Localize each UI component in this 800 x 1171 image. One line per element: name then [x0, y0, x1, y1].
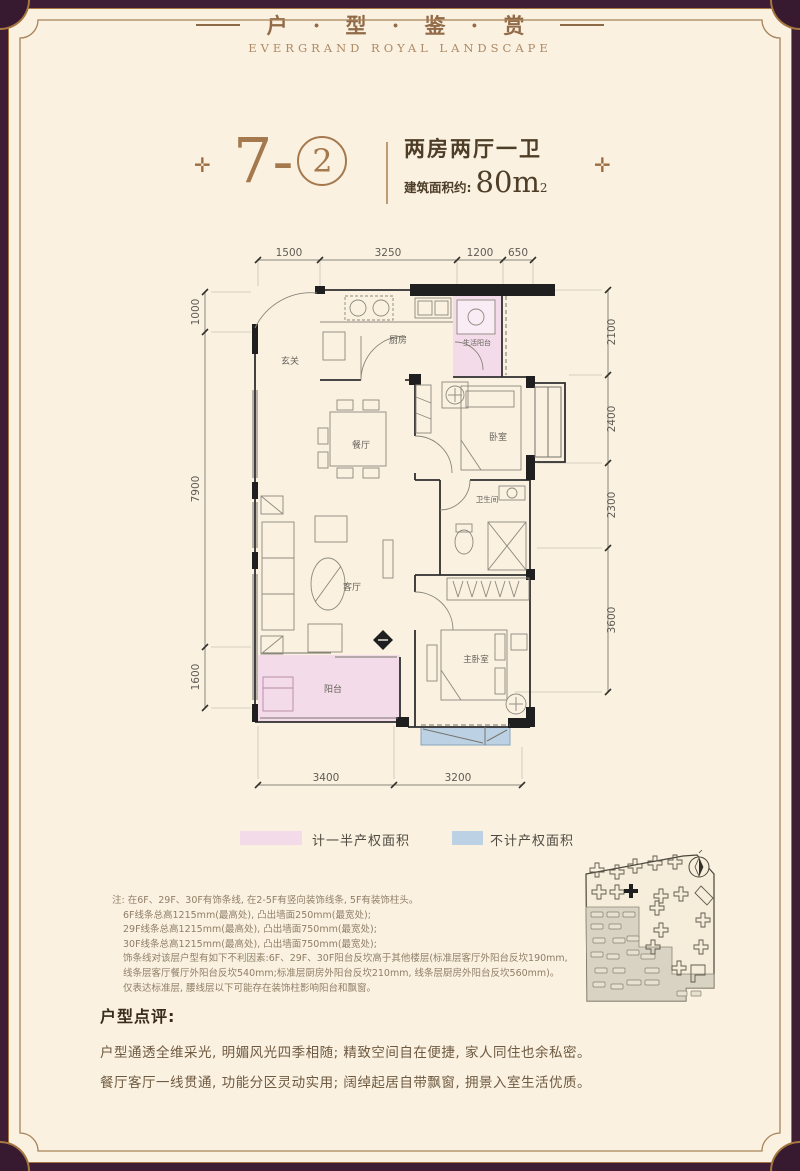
svg-text:3200: 3200 [445, 772, 472, 784]
room-label-dining: 餐厅 [352, 439, 370, 451]
unit-number: 7- 2 [233, 126, 347, 196]
unit-area: 建筑面积约: 80m 2 [404, 169, 548, 196]
legend-swatch-half-property [240, 831, 302, 845]
floorplan-drawing: 1500 3250 1200 650 1000 7900 1600 2100 2… [165, 240, 655, 810]
svg-text:2300: 2300 [606, 492, 618, 519]
site-plan-map [583, 850, 740, 1028]
ornament-cross-right: ✛ [594, 153, 611, 177]
room-label-entry: 玄关 [281, 355, 299, 367]
notes-block: 注: 在6F、29F、30F有饰条线, 在2-5F有竖向装饰线条, 5F有装饰柱… [112, 894, 582, 996]
ornament-cross-left: ✛ [194, 153, 211, 177]
note-line: 30F线条总高1215mm(最高处), 凸出墙面750mm(最宽处); [112, 938, 582, 953]
svg-text:3600: 3600 [606, 607, 618, 634]
room-label-living: 客厅 [343, 581, 361, 593]
area-label: 建筑面积约: [404, 177, 472, 196]
area-sup: 2 [540, 181, 548, 195]
note-line: 仅表达标准层, 腰线层以下可能存在装饰柱影响阳台和飘窗。 [112, 982, 582, 997]
review-heading: 户型点评: [100, 1003, 175, 1027]
note-line: 6F线条总高1215mm(最高处), 凸出墙面250mm(最宽处); [112, 909, 582, 924]
unit-type: 两房两厅一卫 [404, 133, 548, 163]
svg-text:3250: 3250 [375, 247, 402, 259]
unit-number-circled: 2 [297, 136, 347, 186]
area-value: 80m [476, 169, 540, 195]
svg-text:2100: 2100 [606, 319, 618, 346]
room-label-balcony: 阳台 [324, 683, 342, 695]
note-line: 29F线条总高1215mm(最高处), 凸出墙面750mm(最宽处); [112, 923, 582, 938]
svg-text:1000: 1000 [190, 299, 202, 326]
page-subtitle: EVERGRAND ROYAL LANDSCAPE [0, 41, 800, 55]
review-line: 餐厅客厅一线贯通, 功能分区灵动实用; 阔绰起居自带飘窗, 拥景入室生活优质。 [100, 1068, 660, 1098]
brochure-page: 户 · 型 · 鉴 · 赏 EVERGRAND ROYAL LANDSCAPE … [0, 0, 800, 1171]
note-line: 线条层客厅餐厅外阳台反坎540mm;标准层厨房外阳台反坎210mm, 线条层厨房… [112, 967, 582, 982]
svg-text:7900: 7900 [190, 476, 202, 503]
svg-text:1600: 1600 [190, 664, 202, 691]
svg-text:3400: 3400 [313, 772, 340, 784]
room-label-master: 主卧室 [463, 654, 489, 665]
room-label-bedroom: 卧室 [489, 431, 507, 443]
svg-text:2400: 2400 [606, 406, 618, 433]
door-arcs [255, 293, 483, 630]
note-line: 饰条线对该层户型有如下不利因素:6F、29F、30F阳台反坎高于其他楼层(标准层… [112, 952, 582, 967]
review-block: 户型通透全维采光, 明媚风光四季相随; 精致空间自在便捷, 家人同住也余私密。 … [100, 1038, 660, 1098]
room-label-bathroom: 卫生间 [476, 494, 499, 504]
unit-divider [386, 142, 388, 204]
room-labels: 玄关 厨房 生活阳台 餐厅 卧室 卫生间 客厅 主卧室 阳台 [281, 334, 507, 695]
note-line: 注: 在6F、29F、30F有饰条线, 在2-5F有竖向装饰线条, 5F有装饰柱… [112, 894, 582, 909]
legend-label-excluded: 不计产权面积 [490, 830, 574, 849]
unit-info: 两房两厅一卫 建筑面积约: 80m 2 [404, 133, 548, 196]
corner-ornament [772, 1143, 800, 1171]
room-label-service-balcony: 生活阳台 [463, 338, 491, 347]
corner-ornament [0, 1143, 28, 1171]
svg-text:650: 650 [508, 247, 528, 259]
compass-icon [689, 850, 709, 877]
legend-swatch-excluded [452, 831, 483, 845]
unit-number-prefix: 7- [233, 126, 293, 196]
svg-text:1500: 1500 [276, 247, 303, 259]
room-label-kitchen: 厨房 [389, 334, 407, 346]
svg-text:1200: 1200 [467, 247, 494, 259]
legend-label-half-property: 计一半产权面积 [312, 830, 410, 849]
page-title: 户 · 型 · 鉴 · 赏 [0, 10, 800, 40]
review-line: 户型通透全维采光, 明媚风光四季相随; 精致空间自在便捷, 家人同住也余私密。 [100, 1038, 660, 1068]
